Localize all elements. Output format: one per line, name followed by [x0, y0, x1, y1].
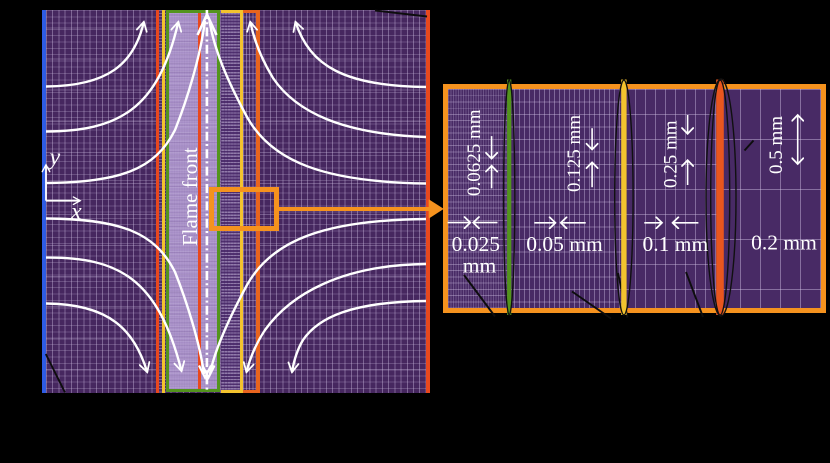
- svg-text:0.1 mm: 0.1 mm: [643, 232, 709, 256]
- svg-text:0.05 mm: 0.05 mm: [526, 232, 603, 256]
- svg-text:y: y: [48, 145, 61, 171]
- svg-text:0.5 mm: 0.5 mm: [766, 116, 787, 174]
- svg-text:0.0625 mm: 0.0625 mm: [464, 109, 485, 196]
- svg-text:mm: mm: [463, 254, 497, 278]
- svg-text:0.025: 0.025: [452, 232, 500, 256]
- svg-text:Flame front: Flame front: [178, 147, 202, 246]
- svg-text:0.125 mm: 0.125 mm: [564, 115, 585, 192]
- svg-text:x: x: [70, 199, 82, 225]
- svg-text:0.25 mm: 0.25 mm: [661, 120, 682, 188]
- svg-text:0.2 mm: 0.2 mm: [751, 231, 817, 255]
